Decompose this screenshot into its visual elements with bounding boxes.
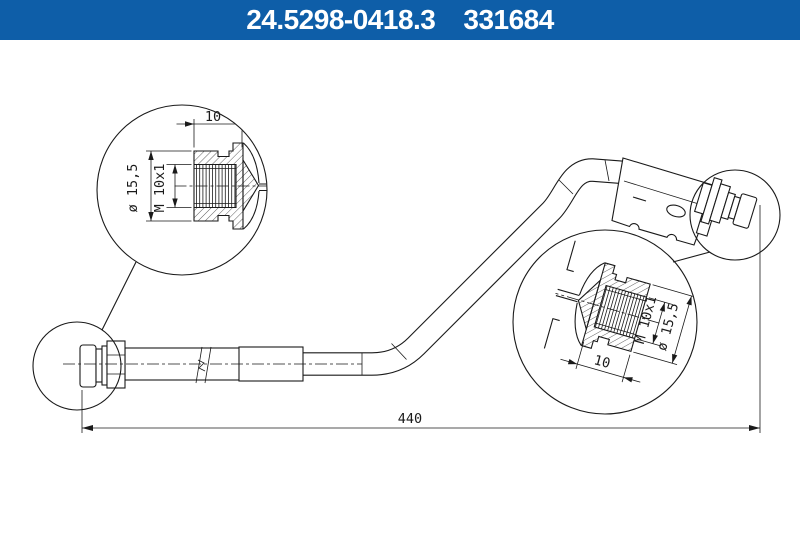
dimension-arrow-left	[82, 425, 93, 431]
brake-hose-drawing: 10 M 10x1 ø 15,5 10 M 10x1 ø 15,5 440	[0, 40, 800, 533]
left-diameter-label: ø 15,5	[125, 164, 141, 213]
leader-line-right	[673, 252, 710, 262]
left-thread-label: M 10x1	[152, 164, 168, 213]
technical-drawing-page: 24.5298-0418.3 331684	[0, 0, 800, 533]
leader-line-left	[102, 262, 136, 330]
hex-nut	[107, 341, 125, 388]
collar-ring	[96, 349, 102, 382]
title-bar: 24.5298-0418.3 331684	[0, 0, 800, 40]
catalog-number: 331684	[463, 4, 553, 36]
overall-length-label: 440	[398, 411, 422, 427]
part-number: 24.5298-0418.3	[246, 4, 435, 36]
collar-ring-2	[102, 346, 107, 385]
left-length-label: 10	[205, 109, 221, 125]
dimension-arrow-right	[749, 425, 760, 431]
end-cap	[80, 345, 96, 387]
